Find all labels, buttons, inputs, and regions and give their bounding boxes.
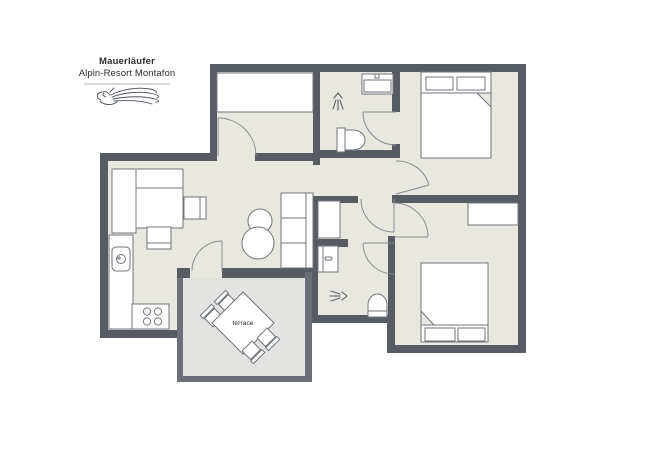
pillow: [425, 328, 455, 341]
bed-1: [421, 72, 491, 158]
sofa: [281, 193, 313, 268]
corner-bench-side: [112, 169, 136, 233]
bathroom2-toilet: [368, 294, 387, 317]
stove: [132, 304, 169, 329]
bedroom2-closet: [468, 203, 518, 225]
pillow: [426, 77, 453, 90]
bed-2: [421, 263, 488, 342]
floor-plan-page: Mauerläufer Alpin-Resort Montafon: [0, 0, 650, 450]
floor-terrace-doorway: [190, 268, 222, 278]
floor-bed1-doorway: [392, 158, 399, 195]
hall-closet: [318, 201, 340, 238]
floor-bath1-doorway: [392, 112, 399, 144]
wardrobe-block: [217, 73, 313, 112]
terrace-label: terrace: [232, 320, 253, 327]
pillow: [458, 328, 485, 341]
kitchen-counter: [109, 235, 133, 329]
floor-storage-doorway: [216, 153, 255, 161]
logo-subtitle: Alpin-Resort Montafon: [79, 68, 176, 79]
pillow: [457, 77, 485, 90]
dining-chair-right: [184, 197, 206, 219]
logo-title: Mauerläufer: [99, 56, 155, 67]
floor-plan-svg: Mauerläufer Alpin-Resort Montafon: [0, 0, 650, 450]
shower-cabin: [318, 246, 338, 272]
resort-logo: Mauerläufer Alpin-Resort Montafon: [79, 56, 176, 105]
bathroom1-sink: [362, 74, 393, 94]
round-table: [242, 227, 274, 259]
wallcreeper-bird-icon: [97, 88, 158, 105]
dining-table: [136, 188, 183, 228]
dining-chair-bottom: [147, 227, 171, 249]
